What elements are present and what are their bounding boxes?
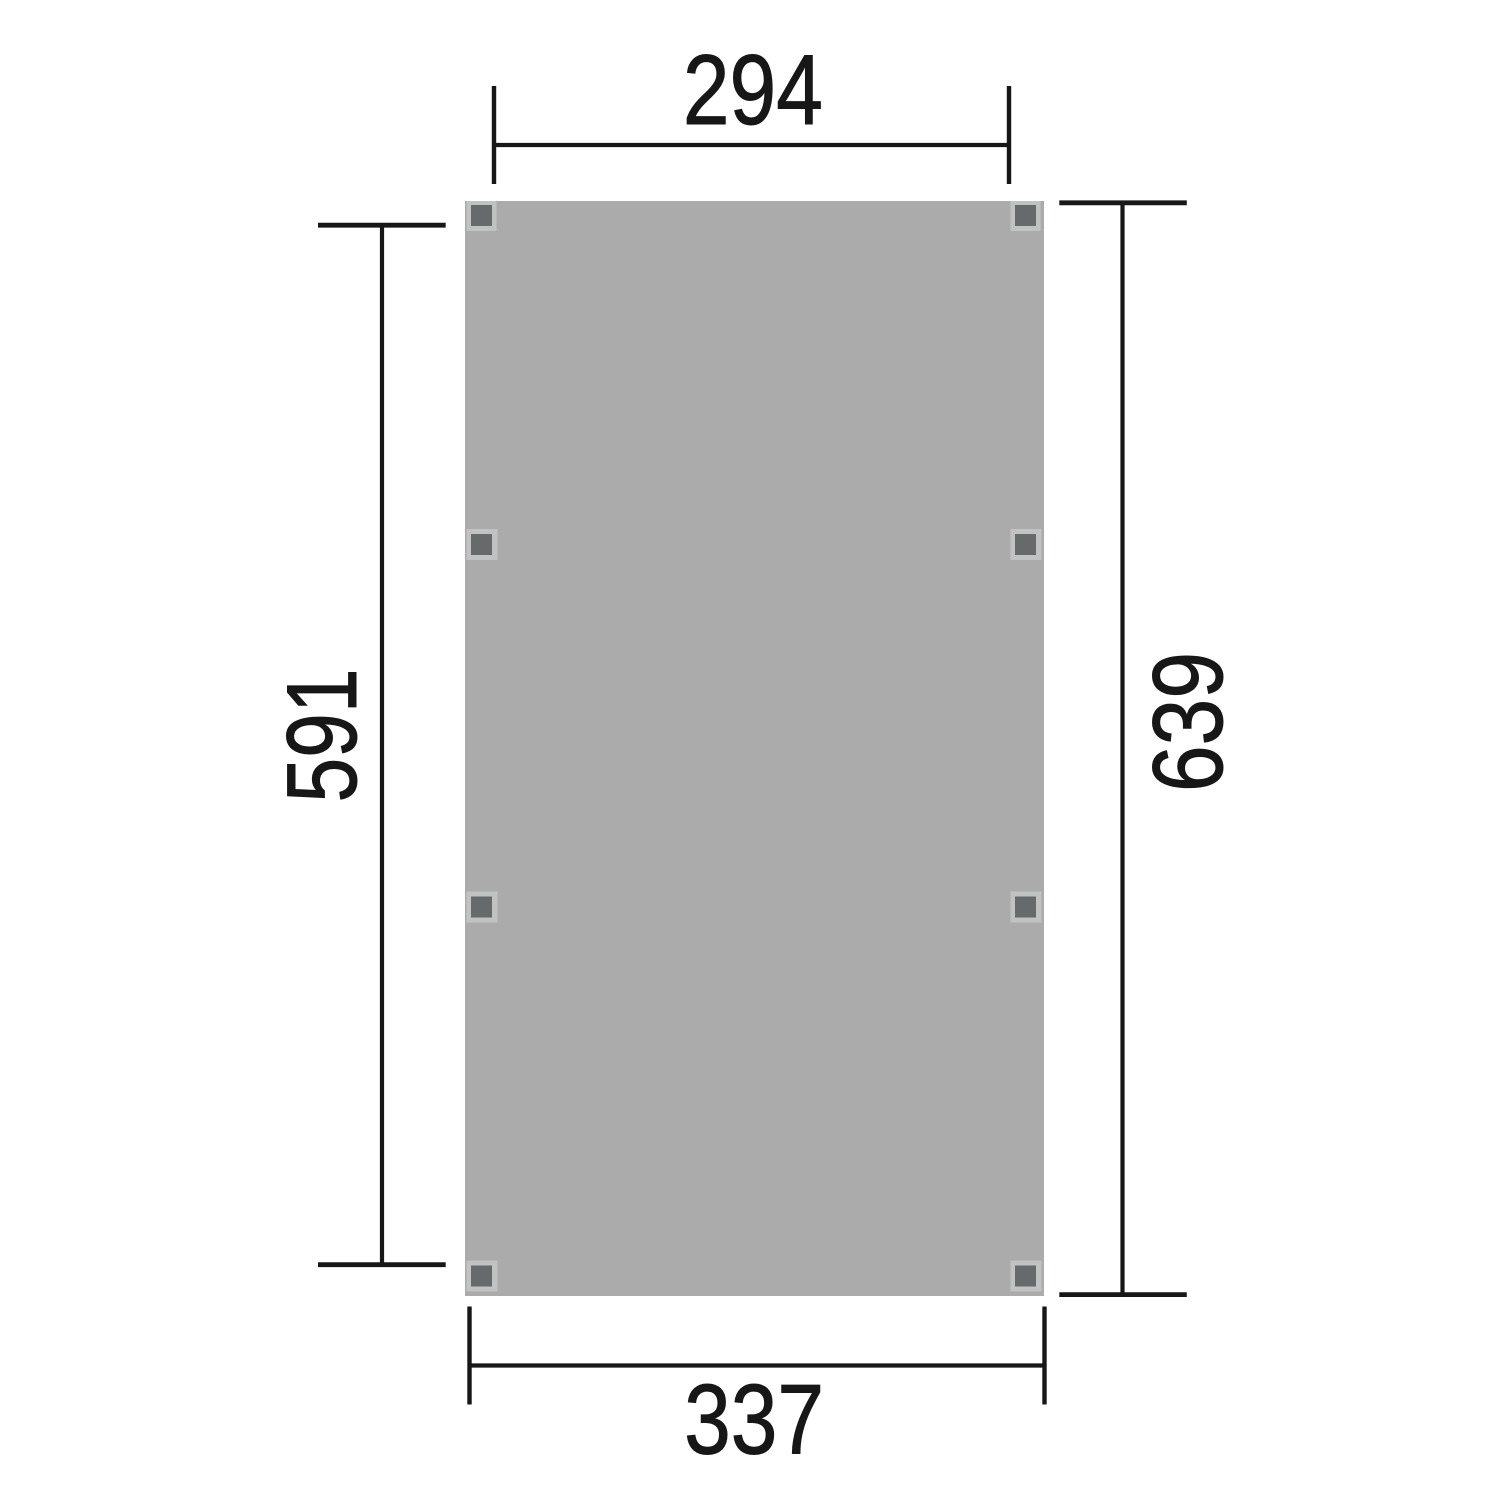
svg-text:639: 639 bbox=[1133, 652, 1244, 792]
svg-text:337: 337 bbox=[684, 1365, 824, 1476]
svg-text:591: 591 bbox=[267, 669, 378, 803]
svg-text:294: 294 bbox=[683, 35, 823, 146]
